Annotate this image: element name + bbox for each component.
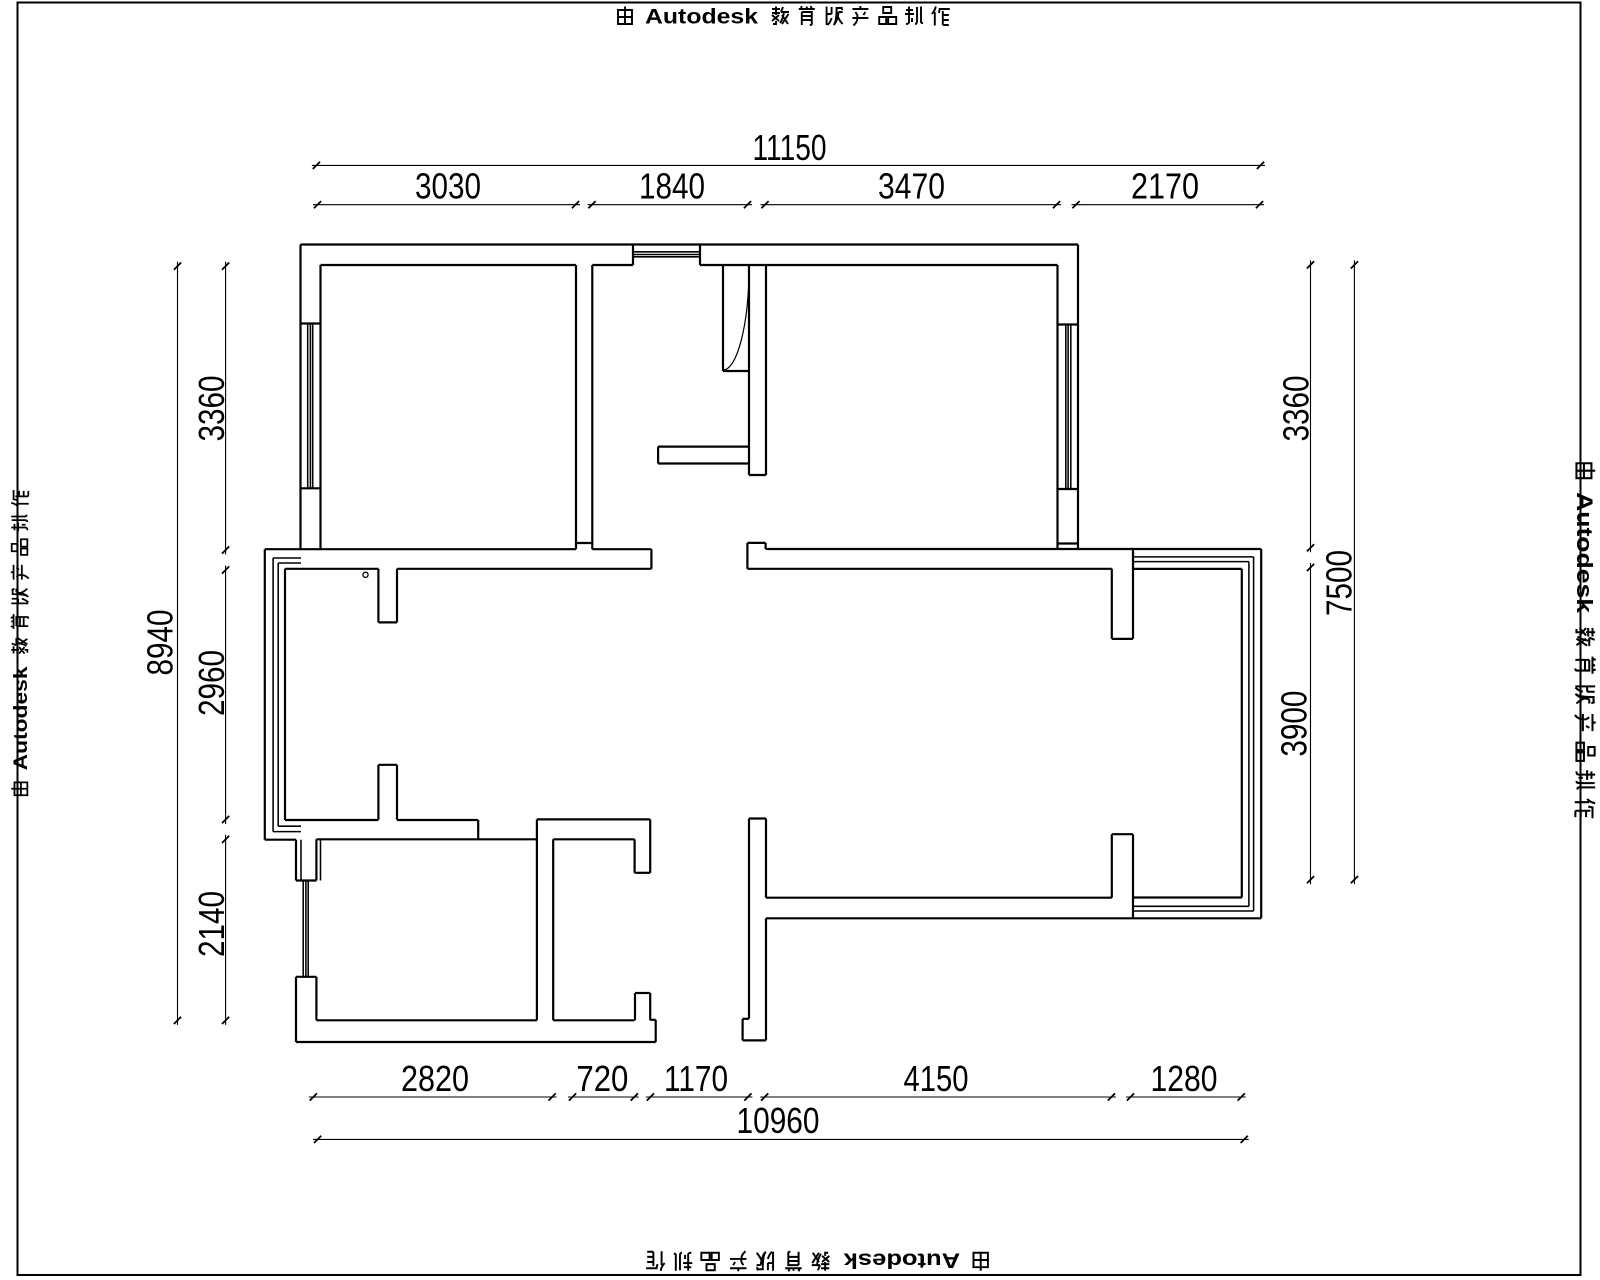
svg-text:1840: 1840: [639, 165, 705, 206]
svg-text:7500: 7500: [1319, 550, 1360, 616]
svg-text:2960: 2960: [191, 650, 232, 716]
svg-text:3360: 3360: [191, 376, 232, 442]
svg-text:1170: 1170: [664, 1058, 728, 1099]
svg-text:3360: 3360: [1276, 376, 1317, 442]
svg-text:3900: 3900: [1274, 691, 1315, 757]
svg-text:3470: 3470: [878, 166, 945, 207]
svg-text:2140: 2140: [191, 891, 232, 957]
svg-text:2820: 2820: [401, 1058, 469, 1099]
svg-text:4150: 4150: [904, 1058, 969, 1099]
svg-text:3030: 3030: [415, 165, 481, 206]
svg-text:720: 720: [576, 1058, 628, 1099]
svg-text:10960: 10960: [737, 1100, 820, 1141]
svg-text:8940: 8940: [140, 610, 181, 676]
svg-text:2170: 2170: [1131, 166, 1199, 207]
svg-text:11150: 11150: [753, 127, 827, 168]
svg-text:1280: 1280: [1151, 1058, 1218, 1099]
